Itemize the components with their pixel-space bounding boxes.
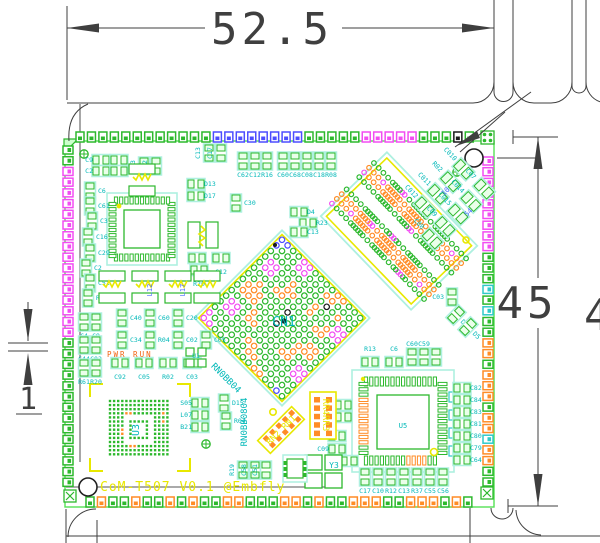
chip-pin — [428, 456, 431, 465]
fiducial-dot — [489, 133, 493, 137]
bga-pad — [154, 433, 156, 435]
bga-pad — [154, 453, 156, 455]
edge-pad — [63, 382, 73, 390]
passive-pad — [327, 163, 335, 169]
pitch-arrow-up — [24, 353, 33, 385]
edge-pad — [483, 264, 493, 272]
passive-component: R04 — [145, 331, 170, 349]
passive-ref-label: C59 — [418, 340, 430, 348]
passive-pad — [291, 208, 297, 216]
edge-pad — [99, 132, 107, 142]
edge-pad — [63, 425, 73, 433]
passive-pad — [432, 359, 440, 365]
edge-pad-center — [399, 137, 403, 141]
passive-pad — [387, 479, 395, 485]
edge-pad — [63, 296, 73, 304]
bga-pad — [109, 433, 111, 435]
edge-pad-center — [364, 137, 368, 141]
passive-pad — [420, 359, 428, 365]
bga-pad — [158, 437, 160, 439]
chip-pin — [417, 456, 420, 465]
edge-pad-center — [488, 362, 492, 366]
chip-pin — [396, 377, 399, 386]
passive-pad — [279, 163, 287, 169]
passive-pad — [454, 420, 460, 428]
edge-pad-center — [488, 170, 492, 174]
edge-pad — [374, 132, 382, 142]
edge-pad-center — [488, 202, 492, 206]
chip-pin — [109, 234, 116, 237]
passive-ref-label: C30 — [244, 199, 256, 207]
bga-pad — [150, 453, 152, 455]
inductor-pad — [165, 271, 191, 281]
slot-fillet-left — [473, 82, 494, 103]
passive-component: C20 — [173, 309, 198, 327]
corner-arc-bottom-right — [516, 510, 541, 535]
silkscreen-board-title: CoM-T507 V0.1 @Embfly — [100, 480, 285, 495]
edge-pad-center — [145, 502, 149, 506]
bga-pad — [162, 424, 164, 426]
edge-pad — [120, 497, 128, 507]
edge-pad-center — [488, 448, 492, 452]
passive-ref-label: C13 — [194, 147, 202, 159]
passive-pad — [118, 342, 126, 348]
chip-pin — [407, 456, 410, 465]
passive-ref-label: C40 — [130, 314, 142, 322]
chip-pin — [109, 254, 116, 257]
chip-pin — [151, 254, 154, 261]
edge-pad — [110, 132, 118, 142]
passive-pad — [93, 156, 99, 164]
edge-pad-center — [68, 244, 72, 248]
chip-pin — [417, 377, 420, 386]
edge-pad — [143, 497, 151, 507]
crystal-pad — [325, 473, 342, 488]
passive-ref-label: C17 — [206, 147, 214, 159]
edge-pad — [246, 497, 254, 507]
passive-component: R20 — [90, 359, 102, 386]
chip-pin — [168, 244, 175, 247]
passive-component: C10 — [372, 468, 384, 495]
bga-pad — [117, 449, 119, 451]
edge-pad — [63, 307, 73, 315]
bga-pad — [158, 416, 160, 418]
passive-pad — [303, 163, 311, 169]
cn1-key-dot — [273, 243, 277, 247]
edge-pad — [63, 232, 73, 240]
passive-pad — [188, 180, 194, 188]
edge-pad — [63, 253, 73, 261]
passive-pad — [291, 228, 297, 236]
inductor-component — [165, 271, 191, 303]
edge-pad-center — [488, 469, 492, 473]
edge-pad — [483, 168, 493, 176]
edge-pad — [97, 497, 105, 507]
ref-u3: U3 — [131, 424, 142, 436]
edge-pad-center — [122, 502, 126, 506]
passive-component: C60 — [406, 340, 418, 366]
passive-component: C64 — [453, 455, 482, 466]
edge-pad-center — [68, 405, 72, 409]
edge-pad-center — [68, 459, 72, 463]
edge-pad — [166, 497, 174, 507]
silkscreen-pwr-run: PWR RUN — [107, 350, 153, 359]
edge-pad-center — [422, 137, 426, 141]
bga-pad — [129, 420, 131, 422]
test-pad-square — [186, 359, 194, 367]
edge-pad — [483, 253, 493, 261]
edge-pad — [63, 414, 73, 422]
passive-ref-label: R13 — [364, 345, 376, 353]
bga-pad — [142, 412, 144, 414]
edge-pad — [397, 132, 405, 142]
edge-pad — [132, 497, 140, 507]
bga-pad — [162, 453, 164, 455]
bga-pad — [121, 441, 123, 443]
bga-pad — [154, 400, 156, 402]
passive-pad — [426, 479, 434, 485]
passive-component: C30 — [231, 194, 256, 212]
bga-ball — [329, 200, 336, 207]
edge-pad-center — [193, 137, 197, 141]
passive-component: C40 — [117, 309, 142, 327]
edge-pad — [431, 132, 439, 142]
edge-pad-center — [112, 137, 116, 141]
chip-pin — [168, 213, 175, 216]
edge-pad-center — [363, 502, 367, 506]
edge-pad-center — [296, 137, 300, 141]
passive-pad — [263, 163, 271, 169]
passive-pad — [192, 399, 198, 407]
chip-pin — [359, 404, 368, 407]
ic-pin — [284, 461, 287, 465]
passive-ref-label: D17 — [204, 192, 216, 200]
edge-pad — [407, 497, 415, 507]
passive-pad — [315, 153, 323, 159]
edge-pad-center — [318, 137, 322, 141]
passive-pad — [279, 153, 287, 159]
edge-pad — [452, 497, 460, 507]
edge-pad — [201, 497, 209, 507]
passive-pad — [400, 479, 408, 485]
passive-pad — [454, 396, 460, 404]
edge-pad-center — [135, 137, 139, 141]
passive-component: R61 — [78, 359, 90, 386]
edge-pad-center — [78, 137, 82, 141]
dim-height-value: 45 — [497, 278, 558, 329]
passive-component: D4 — [290, 207, 315, 218]
bga-pad — [166, 429, 168, 431]
bga-pad — [166, 400, 168, 402]
bga-pad — [166, 453, 168, 455]
edge-pad — [483, 414, 493, 422]
edge-pad — [63, 285, 73, 293]
edge-pad-center — [456, 137, 460, 141]
passive-pad — [413, 469, 421, 475]
edge-pad-center — [227, 137, 231, 141]
passive-pad — [199, 254, 205, 262]
bga-ball — [361, 169, 368, 176]
edge-pad — [395, 497, 403, 507]
edge-pad — [372, 497, 380, 507]
chip-pin — [380, 456, 383, 465]
passive-component: R08 — [325, 152, 337, 179]
edge-pad — [63, 446, 73, 454]
chip-pin — [168, 208, 175, 211]
passive-component: C17 — [359, 468, 371, 495]
chip-pin — [375, 377, 378, 386]
edge-pad — [420, 132, 428, 142]
bga-pad — [138, 412, 140, 414]
edge-pad — [483, 457, 493, 465]
passive-component: B21 — [180, 422, 209, 433]
chip-pin — [166, 197, 169, 204]
edge-pad — [442, 132, 450, 142]
chip-pin — [168, 223, 175, 226]
passive-pad — [408, 359, 416, 365]
edge-pad — [213, 132, 221, 142]
edge-pad — [483, 478, 493, 486]
bga-pad — [154, 412, 156, 414]
edge-pad — [76, 132, 84, 142]
bga-pad — [154, 429, 156, 431]
passive-component: C59 — [418, 340, 430, 366]
bga-pad — [138, 420, 140, 422]
chip-pin — [438, 404, 447, 407]
chip-pin — [168, 228, 175, 231]
chip-pin — [438, 435, 447, 438]
passive-pad — [345, 401, 351, 409]
edge-pad-center — [68, 202, 72, 206]
bga-pad — [146, 400, 148, 402]
corner-notch-arc — [491, 508, 513, 519]
edge-pad-center — [307, 137, 311, 141]
passive-pad — [103, 156, 109, 164]
chip-pin — [370, 377, 373, 386]
passive-pad — [86, 275, 94, 281]
passive-ref-label: C17 — [359, 487, 371, 495]
edge-pad-center — [353, 137, 357, 141]
bga-pad — [133, 404, 135, 406]
passive-pad — [454, 384, 460, 392]
chip-pin — [125, 197, 128, 204]
passive-component: C82 — [453, 383, 482, 394]
chip-pin — [370, 456, 373, 465]
edge-pad — [223, 497, 231, 507]
bga-ball — [356, 174, 363, 181]
inductor-pad — [165, 293, 191, 303]
passive-pad — [361, 469, 369, 475]
edge-pad-center — [68, 395, 72, 399]
chip-pin — [156, 197, 159, 204]
bga-ball — [338, 191, 345, 198]
passive-pad — [92, 324, 100, 330]
fiducial-x — [481, 487, 493, 499]
ic-pin — [304, 467, 307, 471]
edge-pad — [281, 497, 289, 507]
edge-pad-center — [317, 502, 321, 506]
edge-pad-center — [420, 502, 424, 506]
passive-pad — [80, 324, 88, 330]
inductor-pad — [132, 271, 158, 281]
edge-pad-center — [488, 405, 492, 409]
test-pad-square — [198, 359, 206, 367]
passive-pad — [92, 347, 100, 353]
passive-ref-label: R02 — [430, 160, 444, 174]
edge-pad-center — [306, 502, 310, 506]
bga-pad — [121, 445, 123, 447]
passive-pad — [121, 156, 127, 164]
passive-pad — [152, 158, 160, 164]
slot2-fillet-left — [551, 82, 572, 103]
edge-pad-center — [443, 502, 447, 506]
edge-pad-center — [68, 448, 72, 452]
bga-pad — [142, 420, 144, 422]
bga-pad — [109, 400, 111, 402]
edge-pad-center — [488, 384, 492, 388]
chip-pin — [391, 377, 394, 386]
edge-pad-center — [488, 277, 492, 281]
edge-pad — [63, 435, 73, 443]
edge-pad-center — [294, 502, 298, 506]
passive-pad — [454, 444, 460, 452]
rn-pad — [314, 422, 320, 428]
edge-pad — [483, 425, 493, 433]
bga-pad — [133, 400, 135, 402]
chip-pin — [438, 430, 447, 433]
bga-pad — [117, 400, 119, 402]
qfp-chip-bottomright — [352, 370, 454, 472]
bga-pad — [154, 404, 156, 406]
edge-pad — [156, 132, 164, 142]
chip-pin — [130, 254, 133, 261]
chip-pin — [359, 430, 368, 433]
bga-pad — [158, 400, 160, 402]
bga-pad — [117, 416, 119, 418]
edge-pad-center — [68, 309, 72, 313]
bga-pad — [166, 433, 168, 435]
chip-pin — [438, 388, 447, 391]
passive-ref-label: C29 — [98, 249, 110, 257]
bga-pad — [113, 408, 115, 410]
edge-pad — [294, 132, 302, 142]
passive-ref-label: C16 — [96, 233, 108, 241]
edge-pad-center — [488, 394, 492, 398]
passive-component: R02 — [159, 358, 177, 382]
passive-pad — [372, 358, 378, 366]
bga-pad — [158, 453, 160, 455]
bga-pad — [162, 412, 164, 414]
bga-pad — [150, 412, 152, 414]
edge-pad — [235, 497, 243, 507]
bga-pad — [158, 441, 160, 443]
passive-pad — [174, 320, 182, 326]
edge-pad — [63, 339, 73, 347]
bga-pad — [121, 437, 123, 439]
edge-pad — [179, 132, 187, 142]
passive-component: L07 — [180, 410, 209, 421]
edge-pad — [63, 478, 73, 486]
passive-component: C02 — [173, 331, 198, 349]
chip-pin — [423, 377, 426, 386]
passive-ref-label: R04 — [158, 336, 170, 344]
passive-pad — [439, 479, 447, 485]
passive-ref-label: C02 — [186, 336, 198, 344]
bga-pad — [158, 433, 160, 435]
u3-corner-bracket — [90, 458, 103, 471]
passive-pad — [262, 472, 270, 478]
bga-pad — [166, 420, 168, 422]
bga-ball — [435, 282, 442, 289]
bga-pad — [146, 453, 148, 455]
bga-pad — [113, 429, 115, 431]
chip-pin — [168, 249, 175, 252]
passive-ref-label: R20 — [90, 378, 102, 386]
passive-component: C56 — [437, 468, 449, 495]
inductor-pad — [99, 271, 125, 281]
edge-pad — [155, 497, 163, 507]
passive-component: C92 — [111, 358, 129, 382]
edge-pad — [384, 497, 392, 507]
edge-pad — [271, 132, 279, 142]
edge-pad — [338, 497, 346, 507]
edge-pad-center — [68, 234, 72, 238]
passive-pad — [122, 359, 128, 367]
chip-pin — [391, 456, 394, 465]
alignment-target — [202, 440, 210, 448]
passive-pad — [408, 349, 416, 355]
bga-pad — [109, 441, 111, 443]
bga-pad — [121, 416, 123, 418]
ic-body — [287, 459, 303, 478]
edge-pad-center — [466, 502, 470, 506]
bga-pad — [154, 420, 156, 422]
passive-pad — [80, 314, 88, 320]
edge-pad-center — [99, 502, 103, 506]
passive-component — [110, 166, 128, 177]
edge-pad — [483, 446, 493, 454]
arrowhead-right — [462, 24, 494, 33]
passive-ref-label: C56 — [437, 487, 449, 495]
chip-pin — [135, 197, 138, 204]
edge-pad — [292, 497, 300, 507]
bga-pad — [150, 404, 152, 406]
edge-pad-center — [284, 137, 288, 141]
bga-pad — [162, 441, 164, 443]
passive-ref-label: C58 — [240, 464, 248, 476]
passive-ref-label: C05 — [214, 336, 226, 344]
qfp2-pin1-dot — [361, 377, 365, 381]
edge-pad-center — [68, 180, 72, 184]
bga-pad — [125, 445, 127, 447]
chip-pin — [130, 197, 133, 204]
chip-pin — [156, 254, 159, 261]
passive-component: R16 — [261, 152, 273, 179]
ref-y3: Y3 — [329, 461, 339, 470]
bga-pad — [158, 404, 160, 406]
bga-pad — [121, 424, 123, 426]
bga-pad — [138, 449, 140, 451]
passive-pad — [170, 359, 176, 367]
edge-pad — [483, 296, 493, 304]
passive-pad — [374, 469, 382, 475]
edge-pad — [191, 132, 199, 142]
passive-component: C12 — [249, 152, 261, 179]
edge-pad — [361, 497, 369, 507]
bga-pad — [158, 424, 160, 426]
edge-pad-center — [68, 169, 72, 173]
edge-pad — [63, 200, 73, 208]
